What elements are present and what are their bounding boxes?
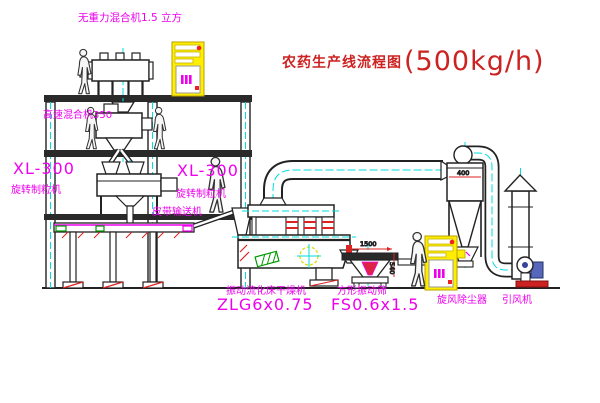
label-belt-conveyor: 皮带输送机: [152, 208, 202, 218]
control-cabinet-right: [425, 236, 457, 290]
worker-figure-top-floor: [78, 49, 91, 93]
label-granulator-model-right: XL-300: [177, 163, 239, 179]
label-gravity-mixer: 无重力混合机1.5 立方: [78, 13, 182, 24]
control-cabinet-top: [172, 42, 204, 96]
label-granulator-name-left: 旋转制粒机: [11, 186, 61, 196]
label-cyclone: 旋风除尘器: [437, 296, 487, 306]
induced-draft-fan: [516, 257, 548, 287]
label-induced-draft-fan: 引风机: [502, 296, 532, 306]
label-sieve-model: FS0.6x1.5: [331, 297, 419, 313]
label-dryer-model: ZLG6x0.75: [217, 297, 314, 313]
process-flow-diagram: 1500 540 400: [0, 0, 600, 403]
label-granulator-model-left: XL-300: [13, 161, 75, 177]
dryer-exhaust-duct: [273, 170, 460, 202]
diagram-title: 农药生产线流程图 (500kg/h): [282, 46, 545, 77]
belt-conveyor: [54, 212, 234, 288]
cyclone-width-dim: 400: [457, 169, 469, 177]
diagram-title-capacity: (500kg/h): [404, 46, 545, 77]
worker-figure-ground: [411, 232, 427, 285]
fluid-bed-dryer: [232, 198, 358, 286]
label-high-speed-mixer: 高速混合机350: [43, 111, 112, 121]
sieve-length-dim: 1500: [360, 240, 377, 248]
sieve-height-dim: 540: [388, 262, 396, 274]
label-granulator-name-right: 旋转制粒机: [176, 190, 226, 200]
diagram-title-text: 农药生产线流程图: [282, 52, 402, 72]
